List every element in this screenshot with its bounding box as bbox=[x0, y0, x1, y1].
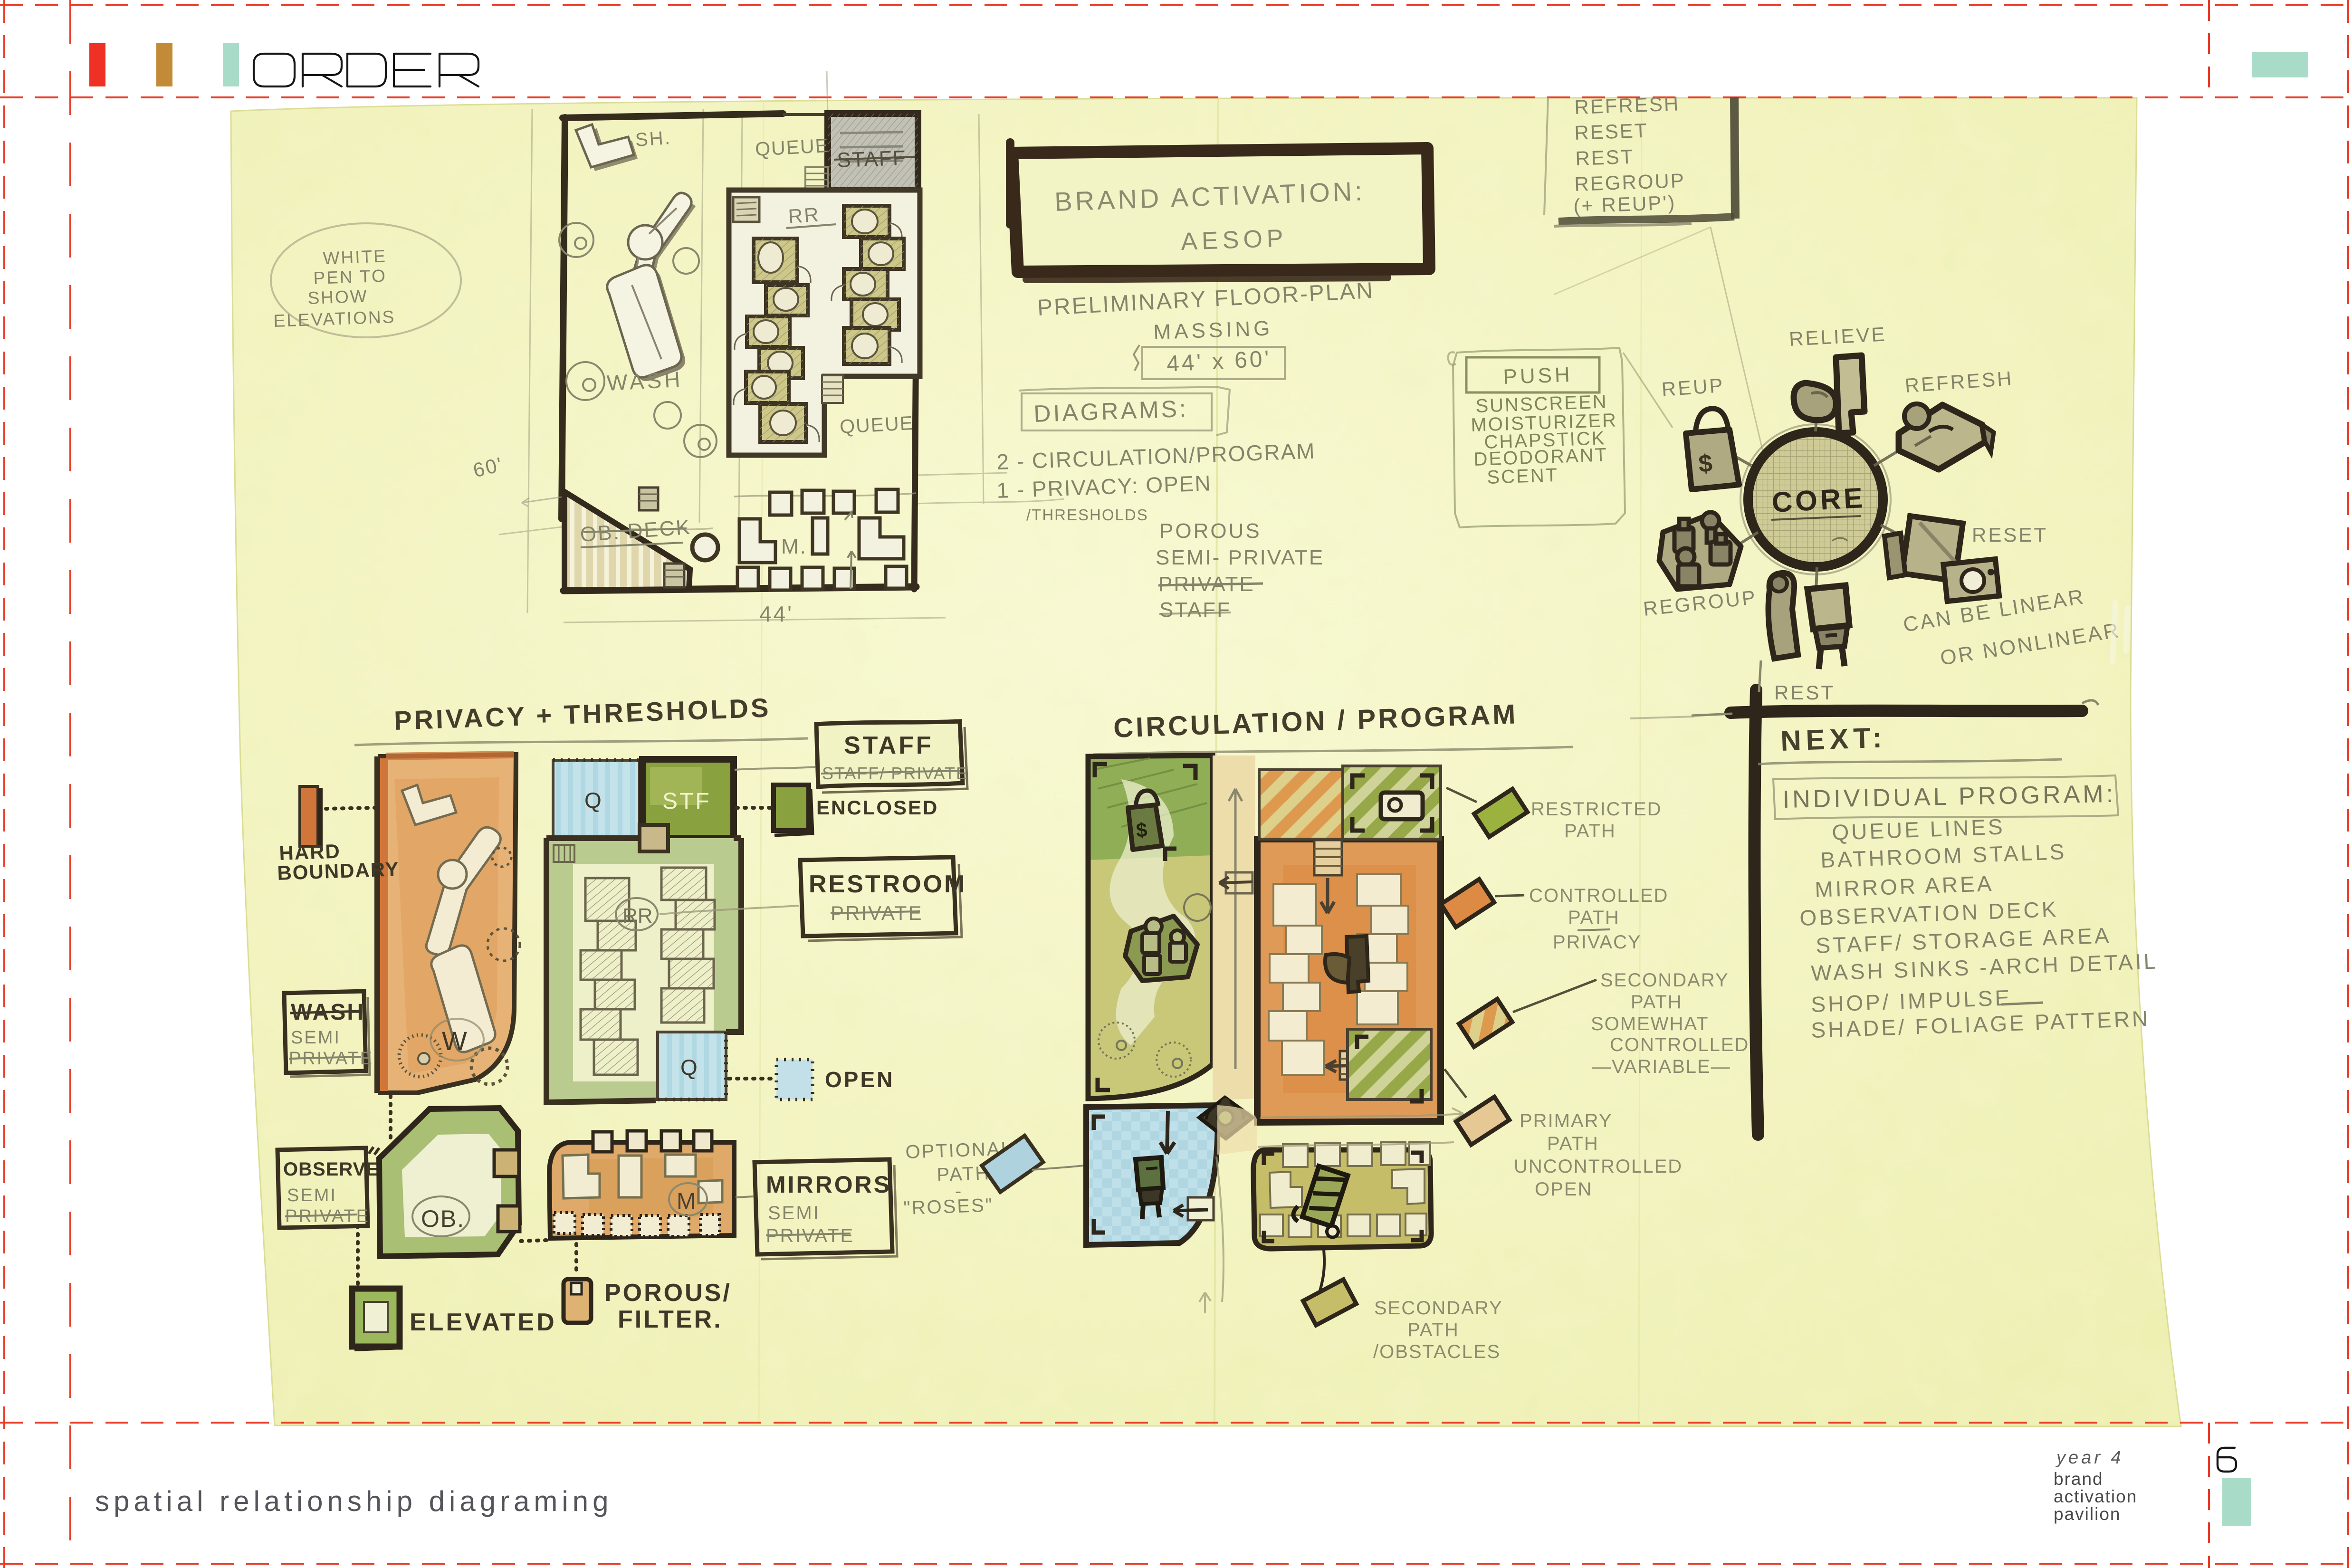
svg-text:SECONDARY: SECONDARY bbox=[1374, 1298, 1503, 1319]
svg-text:PEN TO: PEN TO bbox=[313, 266, 387, 288]
svg-text:M.: M. bbox=[781, 535, 807, 558]
svg-text:WHITE: WHITE bbox=[323, 246, 387, 268]
svg-text:PATH: PATH bbox=[1631, 992, 1683, 1013]
svg-text:activation: activation bbox=[2054, 1487, 2137, 1506]
svg-text:"ROSES": "ROSES" bbox=[903, 1195, 994, 1219]
svg-text:SEMI: SEMI bbox=[768, 1203, 820, 1224]
svg-text:$: $ bbox=[1135, 818, 1148, 841]
svg-text:OPEN: OPEN bbox=[825, 1067, 894, 1092]
svg-text:POROUS/: POROUS/ bbox=[604, 1279, 732, 1307]
svg-text:FILTER.: FILTER. bbox=[618, 1306, 723, 1333]
svg-text:UNCONTROLLED: UNCONTROLLED bbox=[1514, 1156, 1683, 1177]
svg-text:CORE: CORE bbox=[1771, 482, 1866, 518]
svg-text:WASH: WASH bbox=[606, 367, 684, 395]
svg-text:POROUS: POROUS bbox=[1159, 519, 1262, 543]
svg-text:Q: Q bbox=[584, 788, 602, 813]
svg-text:RR: RR bbox=[787, 203, 821, 228]
svg-text:MASSING: MASSING bbox=[1153, 316, 1273, 344]
svg-text:year 4: year 4 bbox=[2055, 1448, 2124, 1468]
svg-text:W: W bbox=[442, 1026, 468, 1056]
svg-text:SCENT: SCENT bbox=[1487, 465, 1559, 488]
svg-text:ELEVATED: ELEVATED bbox=[410, 1309, 557, 1336]
svg-text:PATH: PATH bbox=[1547, 1133, 1599, 1154]
svg-text:$: $ bbox=[1698, 449, 1713, 478]
svg-text:(+ REUP'): (+ REUP') bbox=[1573, 191, 1676, 217]
svg-text:/THRESHOLDS: /THRESHOLDS bbox=[1026, 506, 1148, 524]
svg-text:spatial relationship diagramin: spatial relationship diagraming bbox=[95, 1485, 612, 1517]
svg-text:RESET: RESET bbox=[1972, 524, 2048, 546]
svg-text:REST: REST bbox=[1774, 681, 1835, 704]
svg-text:PRIVACY: PRIVACY bbox=[1553, 932, 1642, 953]
svg-text:SH.: SH. bbox=[635, 127, 672, 151]
svg-text:pavilion: pavilion bbox=[2054, 1504, 2121, 1524]
svg-text:SEMI- PRIVATE: SEMI- PRIVATE bbox=[1156, 546, 1324, 569]
svg-text:RESET: RESET bbox=[1574, 119, 1649, 144]
svg-text:brand: brand bbox=[2054, 1469, 2103, 1489]
svg-text:REST: REST bbox=[1575, 145, 1635, 170]
svg-text:CONTROLLED: CONTROLLED bbox=[1610, 1034, 1749, 1055]
svg-text:NEXT:: NEXT: bbox=[1780, 721, 1887, 757]
svg-text:RR: RR bbox=[622, 904, 653, 927]
svg-text:/OBSTACLES: /OBSTACLES bbox=[1373, 1341, 1501, 1362]
svg-text:RESTROOM: RESTROOM bbox=[809, 870, 966, 898]
svg-text:REUP: REUP bbox=[1661, 374, 1725, 401]
svg-text:SEMI: SEMI bbox=[287, 1186, 337, 1205]
svg-text:44': 44' bbox=[759, 602, 794, 626]
svg-text:INDIVIDUAL PROGRAM:: INDIVIDUAL PROGRAM: bbox=[1782, 780, 2116, 813]
svg-text:PUSH: PUSH bbox=[1503, 363, 1573, 389]
svg-text:DIAGRAMS:: DIAGRAMS: bbox=[1033, 395, 1188, 427]
svg-text:OBSERVE: OBSERVE bbox=[283, 1159, 379, 1180]
svg-text:PATH: PATH bbox=[1407, 1319, 1459, 1340]
svg-text:PRIMARY: PRIMARY bbox=[1520, 1110, 1613, 1131]
svg-text:M: M bbox=[677, 1189, 696, 1214]
svg-text:—VARIABLE—: —VARIABLE— bbox=[1592, 1056, 1731, 1077]
svg-text:CONTROLLED: CONTROLLED bbox=[1529, 885, 1668, 906]
svg-text:PATH: PATH bbox=[1568, 907, 1620, 928]
svg-text:OPEN: OPEN bbox=[1535, 1179, 1592, 1200]
svg-text:ENCLOSED: ENCLOSED bbox=[816, 796, 938, 819]
svg-text:STAFF: STAFF bbox=[1159, 598, 1231, 621]
svg-text:SOMEWHAT: SOMEWHAT bbox=[1591, 1013, 1709, 1034]
svg-text:PATH: PATH bbox=[1564, 821, 1616, 841]
svg-text:RESTRICTED: RESTRICTED bbox=[1531, 799, 1662, 820]
svg-text:Q: Q bbox=[680, 1055, 698, 1080]
svg-text:SECONDARY: SECONDARY bbox=[1600, 970, 1729, 991]
svg-text:SHOW: SHOW bbox=[307, 287, 368, 308]
svg-text:AESOP: AESOP bbox=[1180, 224, 1288, 256]
svg-text:STF: STF bbox=[662, 789, 711, 814]
svg-text:QUEUE: QUEUE bbox=[755, 134, 830, 160]
svg-text:SEMI: SEMI bbox=[291, 1028, 341, 1048]
svg-text:MIRRORS: MIRRORS bbox=[766, 1171, 891, 1198]
svg-text:OB.: OB. bbox=[421, 1205, 465, 1232]
svg-text:QUEUE: QUEUE bbox=[839, 412, 914, 438]
svg-text:BOUNDARY: BOUNDARY bbox=[277, 858, 400, 884]
svg-text:STAFF: STAFF bbox=[844, 732, 934, 759]
svg-text:REFRESH: REFRESH bbox=[1574, 92, 1680, 118]
